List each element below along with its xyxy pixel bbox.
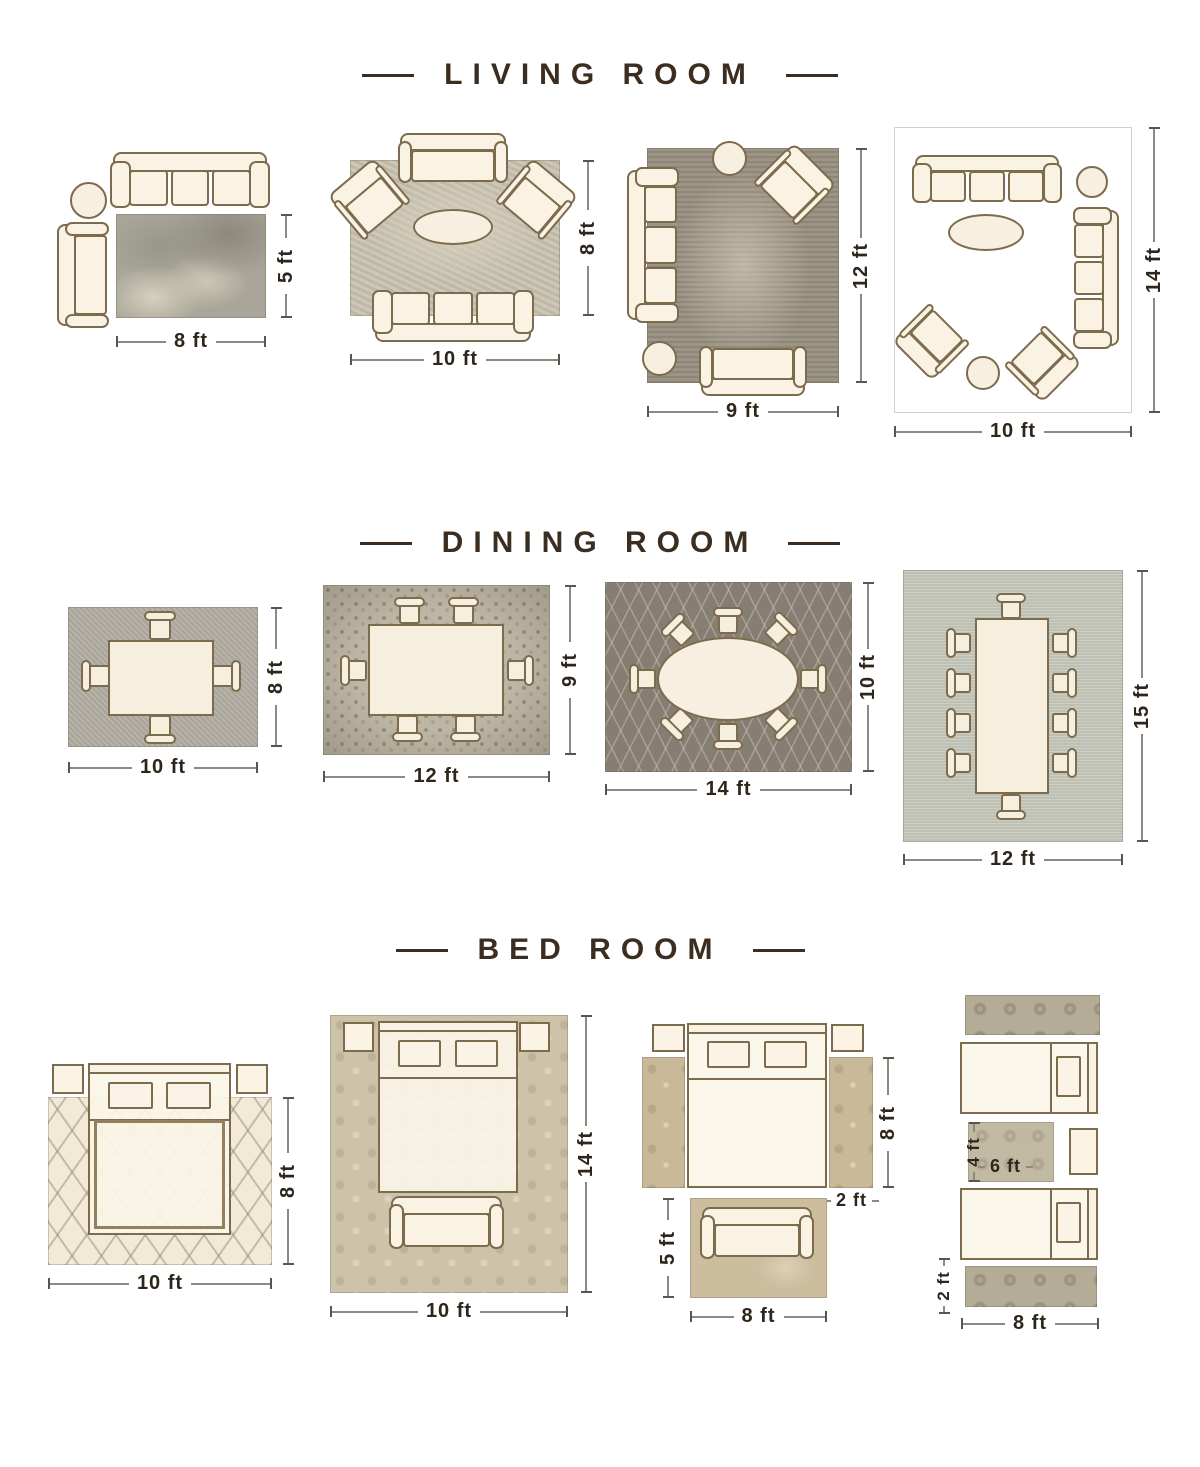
dim-height: 14 ft bbox=[1144, 127, 1164, 413]
sofa bbox=[700, 1207, 814, 1259]
dining-table bbox=[975, 618, 1049, 794]
bench-loveseat bbox=[389, 1196, 504, 1249]
side-table-round bbox=[966, 356, 1000, 390]
dim-width: 8 ft bbox=[116, 330, 266, 353]
dining-table bbox=[368, 624, 504, 716]
section-title: DINING ROOM bbox=[442, 526, 759, 560]
loveseat bbox=[398, 133, 508, 183]
runner-rug-2x8 bbox=[642, 1057, 685, 1188]
dim-height: 10 ft bbox=[858, 582, 878, 772]
dim-height: 8 ft bbox=[278, 1097, 298, 1265]
coffee-table-oval bbox=[413, 209, 493, 245]
chaise-lounge bbox=[57, 222, 109, 328]
dim-width: 12 ft bbox=[323, 765, 550, 788]
sofa-three-seat bbox=[110, 152, 270, 208]
sofa-three-seat bbox=[912, 155, 1062, 203]
side-table-round bbox=[642, 341, 677, 376]
coffee-table-oval bbox=[948, 214, 1024, 251]
dining-chair bbox=[946, 750, 974, 776]
dining-chair bbox=[1049, 750, 1077, 776]
runner-rug-2x8 bbox=[965, 1266, 1097, 1307]
dim-width: 10 ft bbox=[350, 348, 560, 371]
dining-chair bbox=[1049, 710, 1077, 736]
nightstand bbox=[343, 1022, 374, 1052]
dining-chair bbox=[1049, 630, 1077, 656]
dim-width: 9 ft bbox=[647, 400, 839, 423]
dining-chair bbox=[146, 611, 174, 643]
dining-chair bbox=[946, 630, 974, 656]
runner-rug-2x8 bbox=[965, 995, 1100, 1035]
twin-bed bbox=[960, 1188, 1098, 1260]
dim-width: 14 ft bbox=[605, 778, 852, 801]
bed bbox=[88, 1063, 231, 1235]
dim-runner-height: 2 ft bbox=[934, 1258, 954, 1314]
dining-chair bbox=[1049, 670, 1077, 696]
rug-5x8 bbox=[116, 214, 266, 318]
nightstand bbox=[831, 1024, 864, 1052]
dining-chair bbox=[946, 670, 974, 696]
dim-rug-height: 5 ft bbox=[658, 1198, 678, 1298]
dining-chair bbox=[396, 597, 423, 627]
section-title: LIVING ROOM bbox=[444, 58, 756, 92]
header-dash bbox=[753, 949, 805, 952]
dim-width: 10 ft bbox=[48, 1272, 272, 1295]
dim-height: 8 ft bbox=[266, 607, 286, 747]
nightstand bbox=[52, 1064, 84, 1094]
dining-chair bbox=[394, 712, 421, 742]
header-dash bbox=[396, 949, 448, 952]
twin-bed bbox=[960, 1042, 1098, 1114]
dim-runner-width: 8 ft bbox=[961, 1312, 1099, 1335]
header-dash bbox=[362, 74, 414, 77]
dining-table-oval bbox=[657, 637, 799, 721]
side-table-round bbox=[70, 182, 107, 219]
side-table-round bbox=[712, 141, 747, 176]
nightstand bbox=[652, 1024, 685, 1052]
section-header-living-room: LIVING ROOM bbox=[0, 58, 1200, 92]
side-table-round bbox=[1076, 166, 1108, 198]
dim-height: 14 ft bbox=[576, 1015, 596, 1293]
dining-chair bbox=[629, 666, 659, 692]
sofa-three-seat bbox=[372, 290, 534, 342]
dining-chair bbox=[998, 791, 1024, 820]
dim-height: 5 ft bbox=[276, 214, 296, 318]
nightstand bbox=[519, 1022, 550, 1052]
header-dash bbox=[786, 74, 838, 77]
dim-rug-width: 6 ft bbox=[978, 1156, 1052, 1177]
dim-width: 10 ft bbox=[894, 420, 1132, 443]
sofa-three-seat bbox=[1073, 207, 1119, 349]
section-header-dining-room: DINING ROOM bbox=[0, 526, 1200, 560]
bed bbox=[687, 1023, 827, 1188]
dining-chair bbox=[146, 712, 174, 744]
nightstand bbox=[1069, 1128, 1098, 1175]
dim-runner-width: 2 ft bbox=[824, 1190, 886, 1211]
dining-chair bbox=[946, 710, 974, 736]
dim-width: 10 ft bbox=[330, 1300, 568, 1323]
dim-width: 12 ft bbox=[903, 848, 1123, 871]
nightstand bbox=[236, 1064, 268, 1094]
header-dash bbox=[360, 542, 412, 545]
dining-table bbox=[108, 640, 214, 716]
sofa-three-seat bbox=[627, 167, 679, 323]
dim-rug-width: 8 ft bbox=[690, 1305, 827, 1328]
dining-chair bbox=[504, 657, 534, 684]
dim-runner-height: 8 ft bbox=[878, 1057, 898, 1188]
dining-chair bbox=[715, 607, 741, 637]
header-dash bbox=[788, 542, 840, 545]
dining-chair bbox=[340, 657, 370, 684]
dim-width: 10 ft bbox=[68, 756, 258, 779]
dining-chair bbox=[450, 597, 477, 627]
dining-chair bbox=[715, 720, 741, 750]
dining-chair bbox=[797, 666, 827, 692]
dim-height: 9 ft bbox=[560, 585, 580, 755]
rug-size-guide: LIVING ROOM 8 ft 5 ft 10 ft 8 ft bbox=[0, 0, 1200, 1467]
bed bbox=[378, 1021, 518, 1193]
dim-height: 12 ft bbox=[851, 148, 871, 383]
section-header-bed-room: BED ROOM bbox=[0, 933, 1200, 967]
dining-chair bbox=[452, 712, 479, 742]
dim-height: 15 ft bbox=[1132, 570, 1152, 842]
dim-height: 8 ft bbox=[578, 160, 598, 316]
section-title: BED ROOM bbox=[478, 933, 723, 967]
loveseat bbox=[699, 346, 807, 396]
